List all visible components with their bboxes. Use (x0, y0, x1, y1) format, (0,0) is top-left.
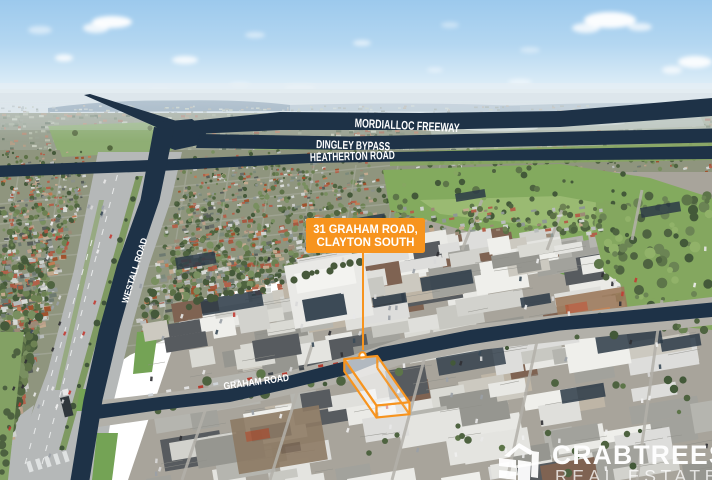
svg-text:CLAYTON SOUTH: CLAYTON SOUTH (317, 235, 415, 249)
svg-text:HEATHERTON ROAD: HEATHERTON ROAD (310, 149, 395, 165)
svg-text:REAL ESTATE: REAL ESTATE (555, 466, 712, 480)
svg-text:31 GRAHAM ROAD,: 31 GRAHAM ROAD, (313, 222, 418, 236)
